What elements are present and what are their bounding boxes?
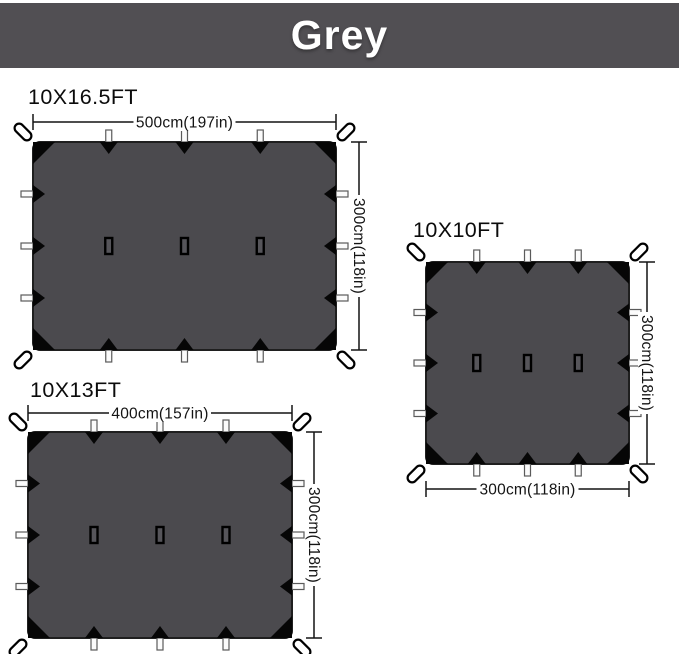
tie-tab — [292, 584, 304, 590]
corner-loop — [406, 242, 427, 263]
tie-tab — [414, 360, 426, 366]
inner-loop-slot — [157, 527, 164, 543]
height-dimension: 300cm(118in) — [305, 432, 323, 638]
tie-tab — [474, 250, 480, 262]
tie-tab — [257, 130, 263, 142]
tarp-size-label: 10X10FT — [413, 218, 504, 242]
tie-tab — [91, 638, 97, 650]
width-dimension: 500cm(197in) — [33, 113, 336, 132]
inner-loop-slot — [473, 355, 480, 371]
tie-tab — [474, 464, 480, 476]
product-size-infographic: Grey 10X16.5FT500cm(197in)300cm(118in)10… — [0, 0, 679, 654]
corner-loop — [336, 350, 357, 371]
tie-tab — [292, 481, 304, 487]
tarp-size-diagrams: 10X16.5FT500cm(197in)300cm(118in)10X10FT… — [0, 0, 679, 654]
inner-loop-slot — [181, 238, 188, 254]
tie-tab — [106, 130, 112, 142]
tarp-diagram-10x16-5ft: 10X16.5FT500cm(197in)300cm(118in) — [13, 85, 368, 370]
tie-tab — [21, 191, 33, 197]
tie-tab — [91, 420, 97, 432]
corner-loop — [13, 350, 34, 371]
inner-loop-slot — [524, 355, 531, 371]
tie-tab — [106, 350, 112, 362]
corner-loop — [629, 242, 650, 263]
tie-tab — [336, 191, 348, 197]
corner-loop — [292, 638, 313, 654]
tie-tab — [414, 411, 426, 417]
tie-tab — [575, 250, 581, 262]
width-dimension-label: 300cm(118in) — [479, 482, 575, 499]
height-dimension-label: 300cm(118in) — [638, 315, 655, 411]
corner-loop — [406, 464, 427, 485]
width-dimension-label: 500cm(197in) — [136, 115, 233, 132]
tie-tab — [16, 481, 28, 487]
corner-loop — [8, 412, 29, 433]
corner-loop — [629, 464, 650, 485]
tie-tab — [336, 295, 348, 301]
tie-tab — [336, 243, 348, 249]
corner-loop — [13, 122, 34, 143]
tie-tab — [16, 584, 28, 590]
tie-tab — [16, 532, 28, 538]
height-dimension: 300cm(118in) — [350, 142, 368, 350]
tie-tab — [21, 295, 33, 301]
corner-loop — [292, 412, 313, 433]
width-dimension: 300cm(118in) — [426, 480, 629, 499]
tarp-diagram-10x13ft: 10X13FT400cm(157in)300cm(118in) — [8, 378, 323, 654]
tie-tab — [223, 420, 229, 432]
inner-loop-slot — [575, 355, 582, 371]
height-dimension: 300cm(118in) — [638, 262, 656, 464]
tie-tab — [525, 250, 531, 262]
corner-loop — [8, 638, 29, 654]
inner-loop-slot — [257, 238, 264, 254]
tie-tab — [525, 464, 531, 476]
tie-tab — [257, 350, 263, 362]
tie-tab — [414, 310, 426, 316]
tarp-size-label: 10X16.5FT — [28, 85, 138, 109]
width-dimension-label: 400cm(157in) — [111, 406, 208, 423]
tie-tab — [575, 464, 581, 476]
tie-tab — [182, 130, 188, 142]
tie-tab — [292, 532, 304, 538]
inner-loop-slot — [223, 527, 230, 543]
width-dimension: 400cm(157in) — [28, 404, 292, 423]
tie-tab — [182, 350, 188, 362]
inner-loop-slot — [105, 238, 112, 254]
tie-tab — [157, 638, 163, 650]
tie-tab — [223, 638, 229, 650]
tarp-size-label: 10X13FT — [30, 378, 121, 402]
height-dimension-label: 300cm(118in) — [350, 198, 367, 294]
tarp-diagram-10x10ft: 10X10FT300cm(118in)300cm(118in) — [406, 218, 656, 499]
corner-loop — [336, 122, 357, 143]
inner-loop-slot — [91, 527, 98, 543]
height-dimension-label: 300cm(118in) — [305, 487, 322, 583]
tie-tab — [21, 243, 33, 249]
